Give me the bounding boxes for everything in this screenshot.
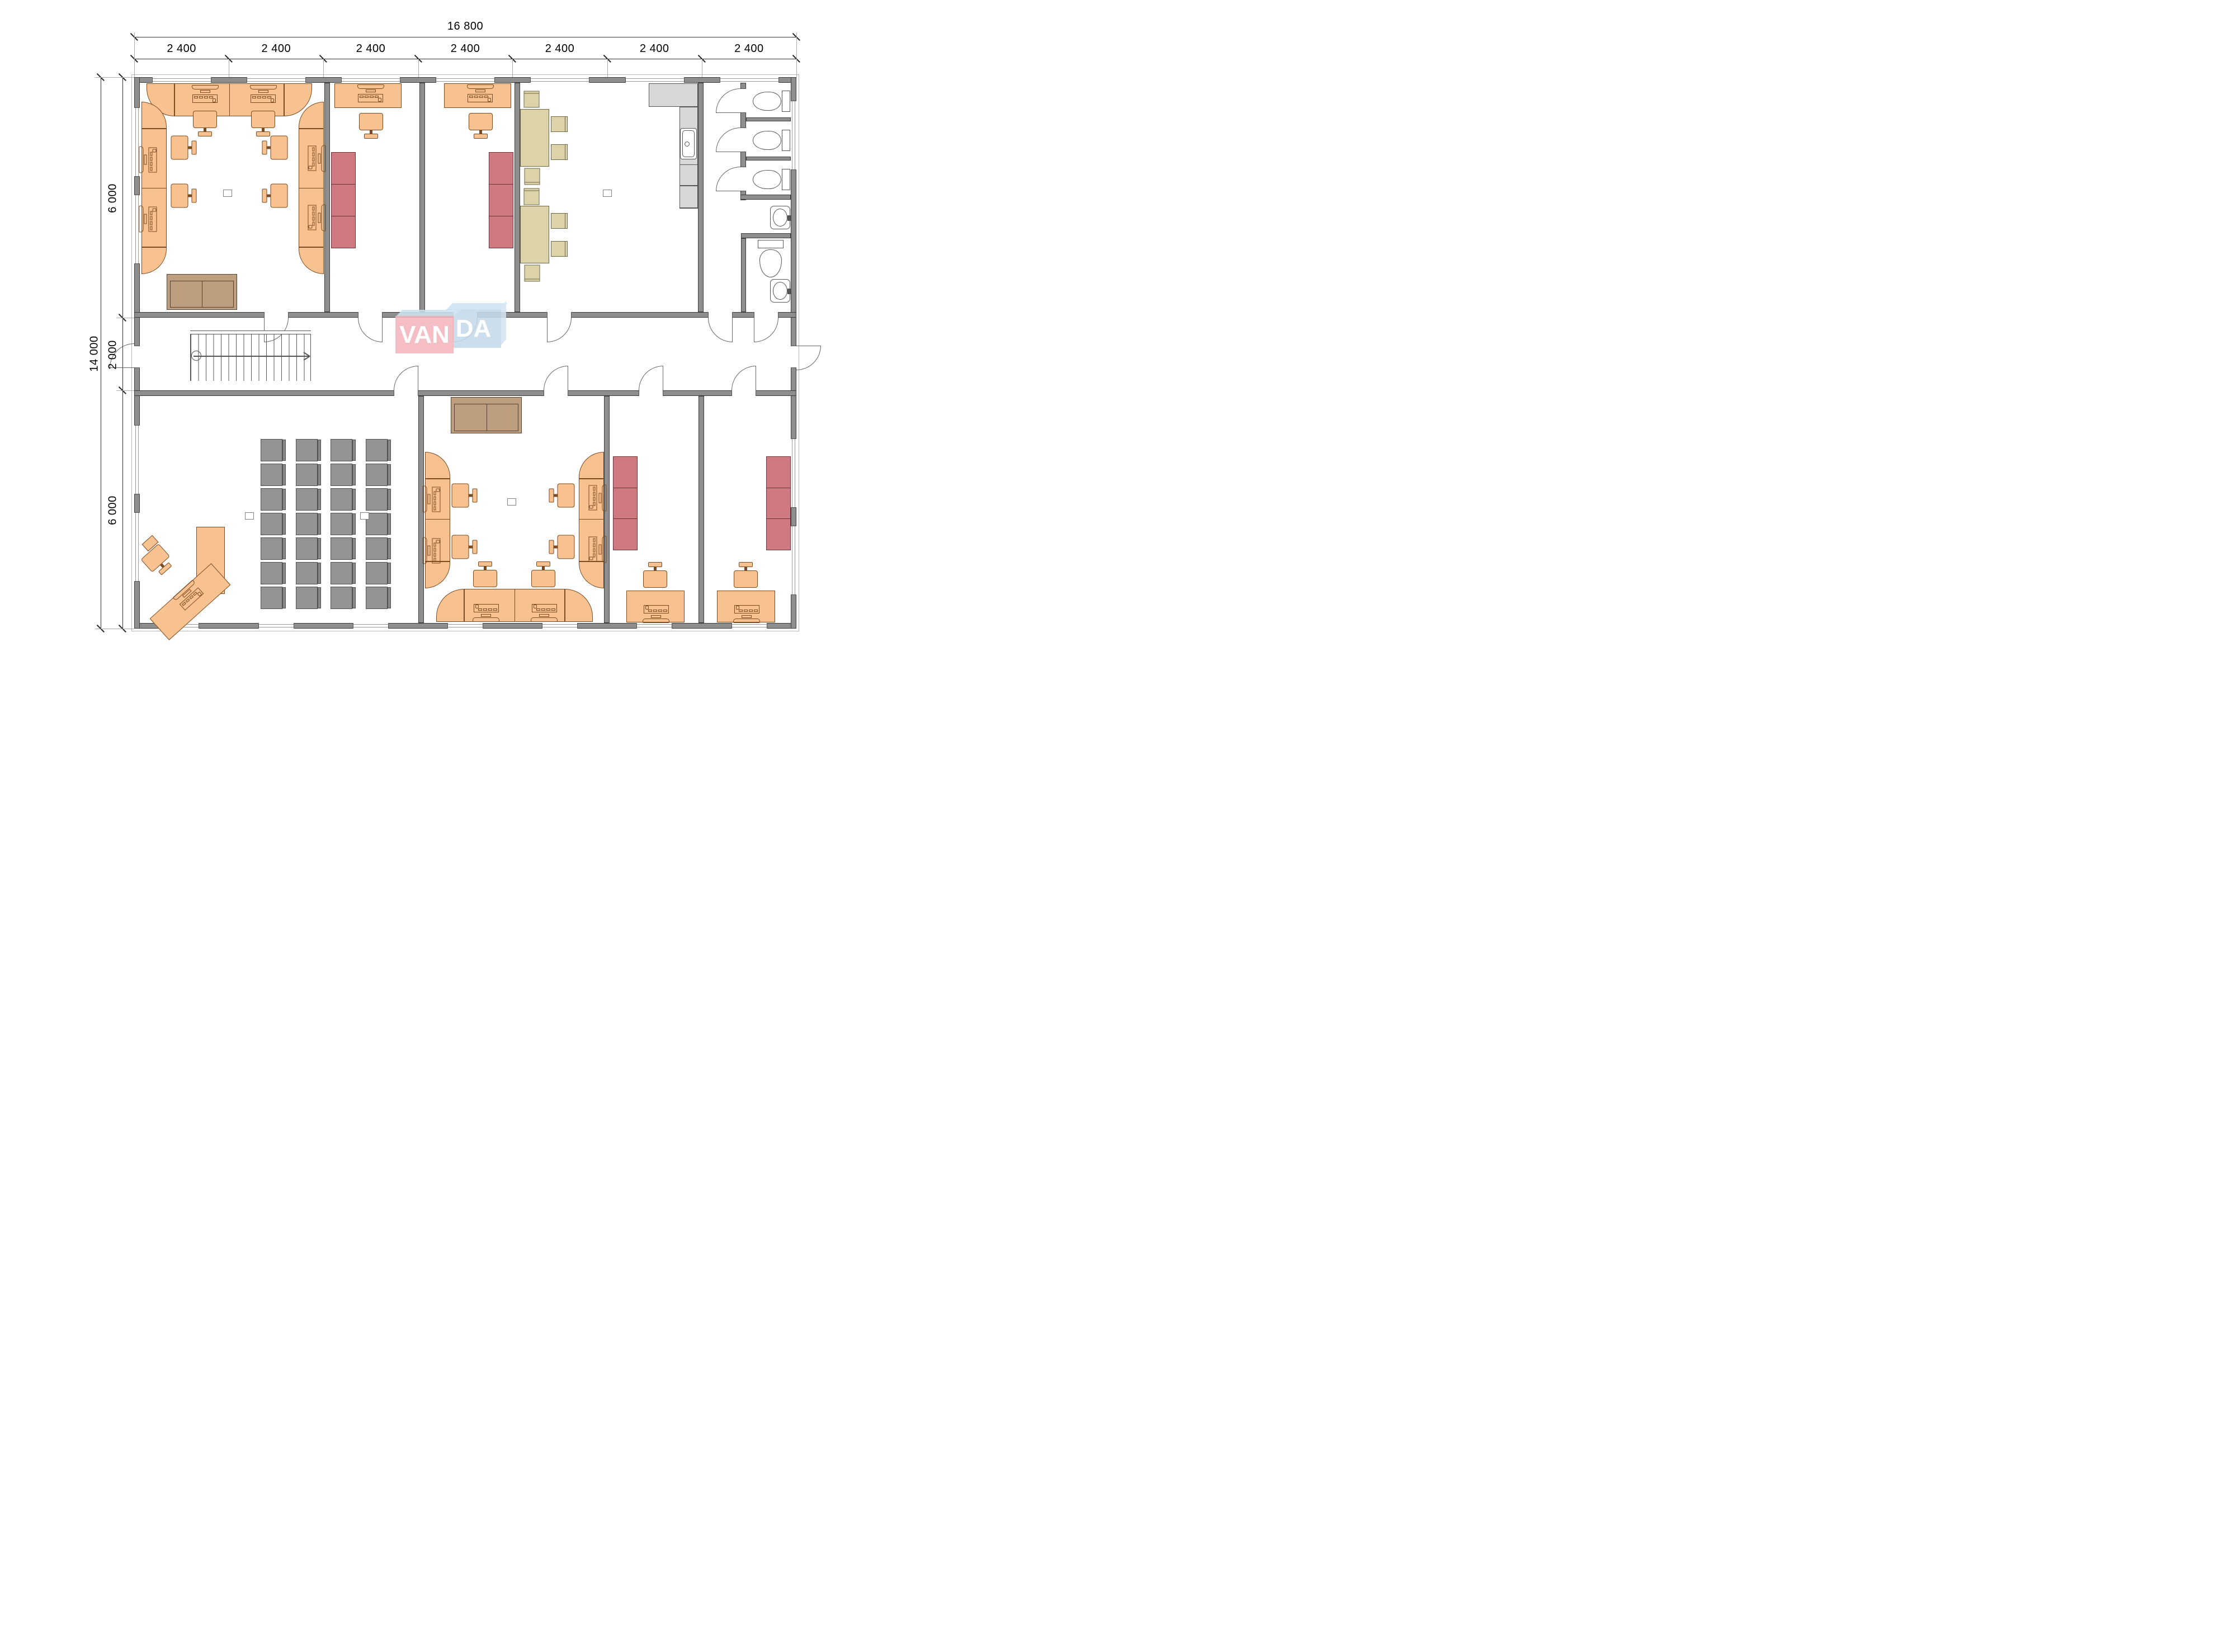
classroom-chair — [261, 537, 286, 560]
dim-segment-label: 2 000 — [107, 330, 120, 380]
dim-extension — [116, 318, 134, 318]
office-chair — [171, 184, 198, 208]
dim-left-total: 14 000 — [88, 329, 101, 379]
dim-extension — [418, 59, 419, 77]
dim-segment-label: 2 400 — [440, 43, 490, 55]
sofa — [167, 274, 237, 310]
wardrobe-cabinet — [766, 456, 791, 550]
dining-chair — [551, 144, 568, 161]
wardrobe-cabinet — [489, 152, 513, 248]
dim-extension — [95, 77, 134, 78]
door-opening — [264, 312, 289, 318]
office-chair — [451, 535, 478, 559]
desk-divider — [299, 188, 324, 188]
floor-box — [360, 512, 369, 520]
dim-extension — [512, 59, 513, 77]
workstation-computer — [529, 592, 558, 622]
classroom-chair — [366, 513, 391, 535]
window — [258, 623, 294, 629]
dining-table — [520, 206, 549, 263]
classroom-chair — [261, 439, 286, 461]
classroom-chair — [331, 439, 356, 461]
floor-box — [245, 512, 254, 520]
office-chair — [473, 560, 497, 587]
classroom-chair — [261, 562, 286, 584]
office-chair — [548, 484, 575, 508]
workstation-computer — [641, 593, 670, 623]
office-chair — [548, 535, 575, 559]
washbasin — [770, 279, 790, 303]
workstation-computer — [471, 592, 500, 622]
dining-chair — [524, 168, 540, 185]
classroom-chair — [296, 439, 321, 461]
window — [134, 512, 140, 582]
workstation-computer — [731, 593, 761, 623]
dim-segment-label: 2 400 — [724, 43, 774, 55]
wall — [515, 83, 520, 312]
workstation-computer — [423, 484, 452, 513]
wall — [746, 157, 791, 161]
workstation-computer — [357, 84, 386, 114]
workstation-computer — [577, 484, 606, 513]
window — [436, 77, 495, 83]
dim-extension — [796, 32, 797, 77]
window — [720, 77, 779, 83]
classroom-chair — [331, 537, 356, 560]
window — [447, 623, 483, 629]
floor-box — [507, 498, 516, 506]
sofa — [451, 397, 521, 433]
kitchen-sink — [680, 128, 697, 159]
dim-extension — [229, 59, 229, 77]
floor-plan-page: 16 800 14 000 2 4002 4002 4002 4002 4002… — [0, 0, 895, 661]
dining-chair — [551, 116, 568, 133]
desk-divider — [515, 589, 515, 622]
office-chair — [261, 184, 287, 208]
office-chair — [193, 111, 217, 138]
office-chair — [734, 561, 758, 588]
office-chair — [171, 136, 198, 160]
door-opening — [453, 312, 478, 318]
desk-divider — [579, 519, 604, 520]
office-chair — [531, 560, 555, 587]
door-opening — [547, 312, 572, 318]
classroom-chair — [366, 537, 391, 560]
door-opening — [639, 390, 663, 396]
window — [791, 526, 796, 595]
floor-plan-canvas — [0, 0, 895, 661]
wall — [741, 233, 791, 238]
window — [791, 101, 796, 170]
dim-segment-label: 2 400 — [346, 43, 396, 55]
window — [636, 623, 672, 629]
classroom-chair — [331, 488, 356, 511]
dining-chair — [551, 213, 568, 229]
classroom-chair — [296, 537, 321, 560]
office-chair — [359, 113, 383, 140]
window — [152, 77, 211, 83]
dim-segment-label: 2 400 — [157, 43, 207, 55]
dim-segment-label: 6 000 — [107, 485, 120, 536]
classroom-chair — [261, 587, 286, 609]
door-opening — [754, 312, 778, 318]
dining-chair — [524, 188, 540, 205]
dim-line-top-total — [134, 37, 796, 37]
wardrobe-cabinet — [331, 152, 356, 248]
kitchen-counter — [679, 164, 698, 186]
wall — [419, 83, 425, 312]
dim-segment-label: 2 400 — [535, 43, 585, 55]
window — [791, 438, 796, 508]
dining-chair — [524, 265, 540, 282]
office-chair — [643, 561, 667, 588]
desk-divider — [425, 519, 450, 520]
classroom-chair — [331, 587, 356, 609]
dim-extension — [134, 32, 135, 77]
door-opening — [740, 167, 746, 191]
dim-segment-label: 6 000 — [107, 173, 120, 224]
classroom-chair — [366, 464, 391, 486]
wall — [740, 195, 791, 200]
door-opening — [740, 88, 746, 113]
window — [341, 77, 400, 83]
door-opening — [544, 390, 568, 396]
dim-line-left-segments — [122, 77, 123, 629]
washbasin — [770, 206, 790, 229]
toilet — [758, 240, 784, 279]
dim-line-top-segments — [134, 59, 796, 59]
floor-box — [603, 190, 612, 197]
classroom-chair — [366, 562, 391, 584]
workstation-computer — [296, 145, 326, 174]
classroom-chair — [331, 562, 356, 584]
dim-line-left-total — [101, 77, 101, 629]
toilet — [752, 91, 790, 112]
workstation-computer — [466, 84, 495, 114]
classroom-chair — [296, 587, 321, 609]
window — [134, 425, 140, 494]
classroom-chair — [366, 439, 391, 461]
door-opening — [708, 312, 733, 318]
classroom-chair — [296, 513, 321, 535]
dim-segment-label: 2 400 — [251, 43, 301, 55]
classroom-chair — [366, 587, 391, 609]
toilet — [752, 130, 790, 151]
dim-extension — [702, 59, 702, 77]
workstation-computer — [139, 204, 168, 233]
classroom-chair — [331, 513, 356, 535]
window — [247, 77, 306, 83]
office-chair — [469, 113, 493, 140]
dining-chair — [551, 241, 568, 257]
office-chair — [451, 484, 478, 508]
floor-box — [223, 190, 232, 197]
workstation-computer — [423, 535, 452, 564]
wall — [746, 117, 791, 121]
door-opening — [394, 390, 418, 396]
dining-chair — [524, 91, 540, 108]
dining-table — [520, 109, 549, 167]
wall — [741, 238, 746, 312]
classroom-chair — [261, 488, 286, 511]
wall — [324, 83, 330, 312]
office-chair — [261, 136, 287, 160]
window — [731, 623, 767, 629]
dim-top-total: 16 800 — [440, 20, 490, 33]
window — [542, 623, 578, 629]
kitchen-counter — [679, 186, 698, 208]
wall — [698, 83, 704, 312]
classroom-chair — [296, 464, 321, 486]
classroom-chair — [261, 513, 286, 535]
desk-divider — [141, 188, 167, 188]
staircase — [190, 331, 311, 381]
door-opening — [358, 312, 383, 318]
toilet — [752, 169, 790, 190]
dim-extension — [323, 59, 324, 77]
workstation-computer — [139, 145, 168, 174]
dim-segment-label: 2 400 — [629, 43, 679, 55]
door-opening — [791, 346, 796, 368]
dim-extension — [95, 629, 134, 629]
wall — [699, 396, 704, 623]
workstation-computer — [577, 535, 606, 564]
dim-extension — [116, 390, 134, 391]
door-opening — [740, 128, 746, 152]
workstation-computer — [296, 204, 326, 233]
door-swing — [796, 346, 821, 370]
office-chair — [251, 111, 275, 138]
dim-extension — [607, 59, 608, 77]
window — [353, 623, 389, 629]
window — [625, 77, 685, 83]
door-opening — [134, 346, 140, 368]
wall — [134, 390, 796, 396]
desk-divider — [229, 83, 230, 116]
classroom-chair — [296, 488, 321, 511]
wardrobe-cabinet — [613, 456, 638, 550]
classroom-chair — [366, 488, 391, 511]
window — [530, 77, 589, 83]
classroom-chair — [261, 464, 286, 486]
classroom-chair — [296, 562, 321, 584]
door-opening — [731, 390, 756, 396]
classroom-chair — [331, 464, 356, 486]
kitchen-counter — [649, 83, 698, 107]
